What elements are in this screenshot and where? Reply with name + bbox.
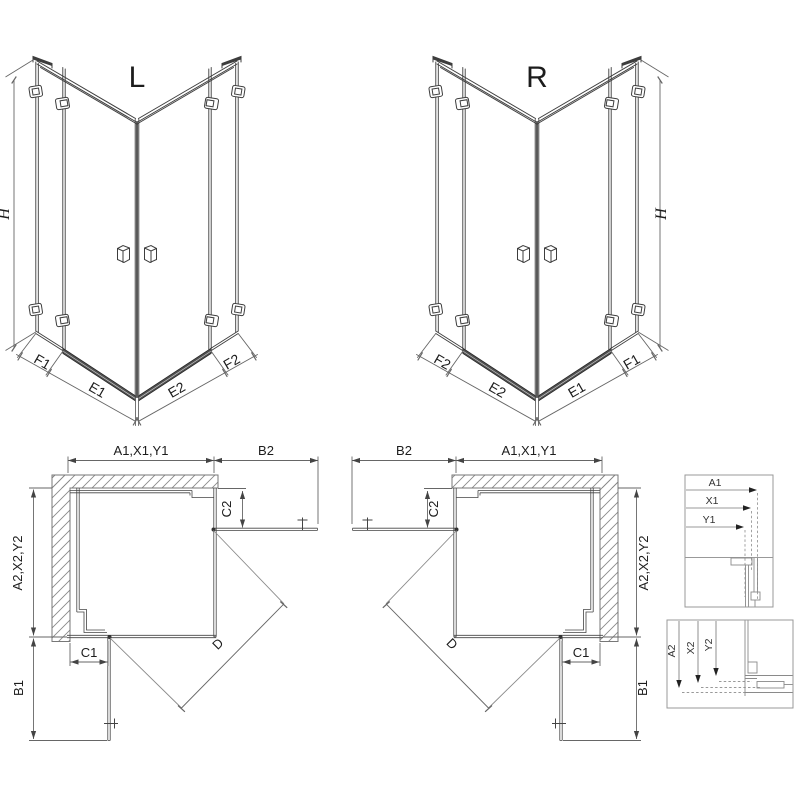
dim-label-b2: B2: [396, 443, 412, 458]
drawing-svg: L H F1 E1 E2 F2 R H F2 E2 E1 F1 A1,X1,Y1…: [0, 0, 800, 800]
profile-section: [731, 558, 760, 607]
glass-wall-right-half: [136, 57, 257, 426]
dim-label-b2: B2: [258, 443, 274, 458]
plan-geometry: [29, 457, 318, 741]
variant-label-right: R: [526, 61, 548, 94]
dim-label-a2x2y2: A2,X2,Y2: [636, 536, 651, 591]
glass-wall-right-half: [536, 57, 657, 426]
detail-label-y2: Y2: [703, 638, 715, 651]
dim-label-a2x2y2: A2,X2,Y2: [10, 536, 25, 591]
wall-hatch-top: [52, 475, 218, 488]
shower-enclosure-technical-drawing: L H F1 E1 E2 F2 R H F2 E2 E1 F1 A1,X1,Y1…: [0, 0, 800, 800]
view-3d-left: L H F1 E1 E2 F2: [0, 57, 258, 426]
wall-hatch-side: [52, 475, 70, 642]
detail-label-a2: A2: [666, 644, 678, 657]
plan-view-right: B2 A1,X1,Y1 C2 A2,X2,Y2 C1 B1 D: [352, 443, 651, 741]
dim-label-c2: C2: [219, 501, 234, 518]
detail-label-x2: X2: [685, 641, 697, 654]
plan-view-left: A1,X1,Y1 B2 C2 A2,X2,Y2 C1 B1 D: [10, 443, 318, 741]
dim-label-c1: C1: [573, 645, 590, 660]
height-dim-label: H: [0, 207, 13, 221]
wall-hatch-side: [600, 475, 618, 642]
detail-panel-width-dims: A1 X1 Y1: [685, 475, 773, 607]
dim-label-b1: B1: [635, 680, 650, 696]
plan-geometry: [352, 457, 641, 741]
dim-label-c1: C1: [81, 645, 98, 660]
height-dim-label: H: [653, 207, 670, 221]
glass-wall-left-half: [417, 57, 538, 426]
wall-hatch-top: [452, 475, 618, 488]
profile-section: [745, 621, 793, 697]
detail-label-x1: X1: [706, 495, 719, 507]
dim-label-b1: B1: [11, 680, 26, 696]
detail-label-y1: Y1: [703, 514, 716, 526]
glass-wall-left-half: [17, 57, 138, 426]
variant-label-left: L: [129, 61, 146, 94]
detail-panel-depth-dims: A2 X2 Y2: [666, 620, 793, 708]
dim-label-c2: C2: [426, 501, 441, 518]
detail-label-a1: A1: [709, 477, 722, 489]
dim-label-a1x1y1: A1,X1,Y1: [114, 443, 169, 458]
view-3d-right: R H F2 E2 E1 F1: [417, 57, 671, 426]
dim-label-a1x1y1: A1,X1,Y1: [502, 443, 557, 458]
